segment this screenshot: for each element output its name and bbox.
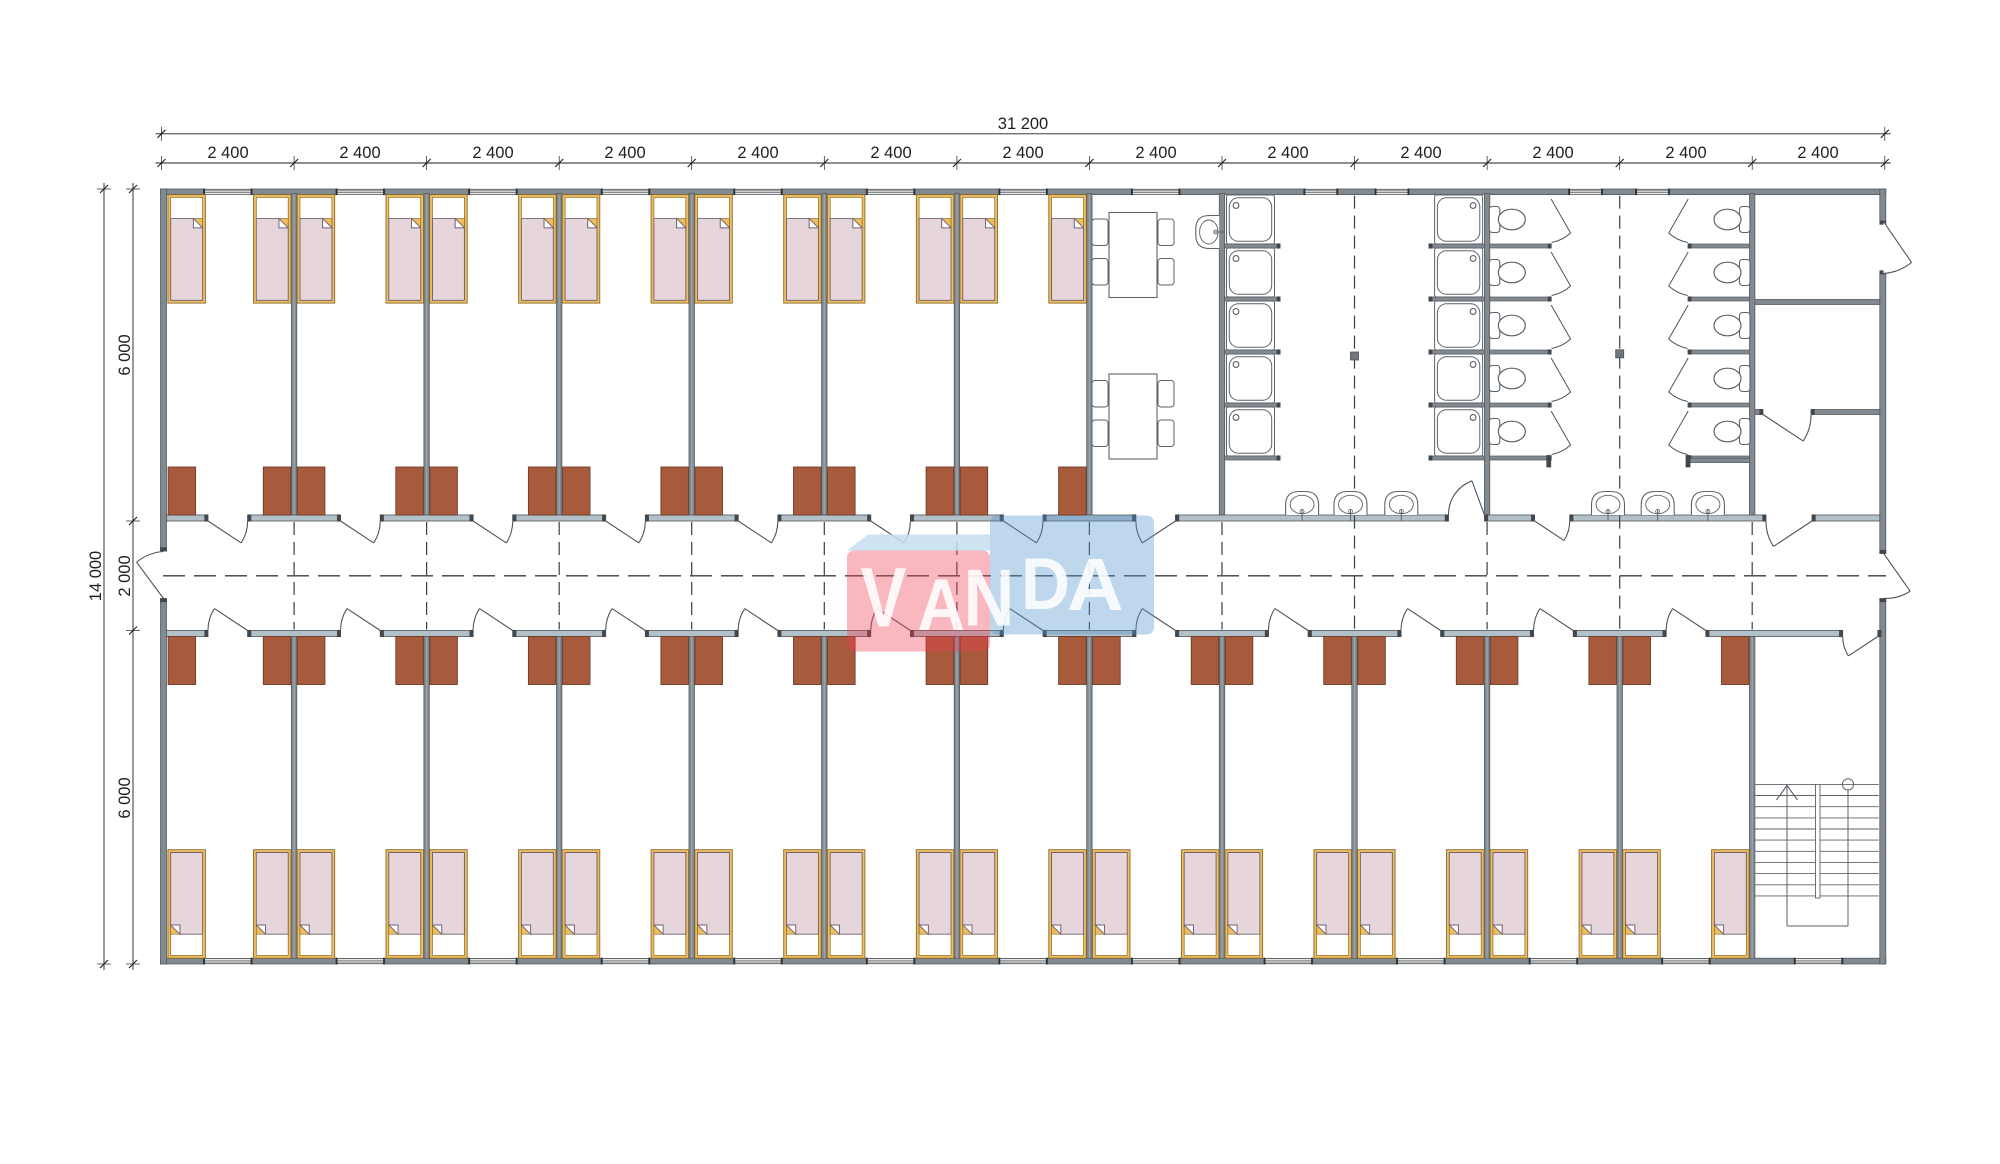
- svg-text:A: A: [1067, 544, 1124, 626]
- svg-text:6 000: 6 000: [116, 334, 134, 375]
- svg-text:31 200: 31 200: [998, 115, 1048, 133]
- svg-text:14 000: 14 000: [87, 551, 105, 601]
- svg-text:A: A: [918, 564, 965, 646]
- svg-text:2 400: 2 400: [1532, 144, 1573, 162]
- svg-text:2 400: 2 400: [1002, 144, 1043, 162]
- svg-text:2 000: 2 000: [116, 555, 134, 596]
- svg-text:2 400: 2 400: [737, 144, 778, 162]
- svg-text:2 400: 2 400: [1267, 144, 1308, 162]
- svg-text:6 000: 6 000: [116, 777, 134, 818]
- svg-text:2 400: 2 400: [472, 144, 513, 162]
- svg-text:2 400: 2 400: [207, 144, 248, 162]
- svg-text:2 400: 2 400: [1665, 144, 1706, 162]
- svg-text:2 400: 2 400: [339, 144, 380, 162]
- svg-text:2 400: 2 400: [1797, 144, 1838, 162]
- svg-text:2 400: 2 400: [870, 144, 911, 162]
- svg-text:N: N: [964, 553, 1015, 644]
- svg-text:V: V: [861, 551, 907, 645]
- svg-text:2 400: 2 400: [1135, 144, 1176, 162]
- svg-text:2 400: 2 400: [1400, 144, 1441, 162]
- svg-text:D: D: [1021, 543, 1070, 625]
- svg-text:2 400: 2 400: [604, 144, 645, 162]
